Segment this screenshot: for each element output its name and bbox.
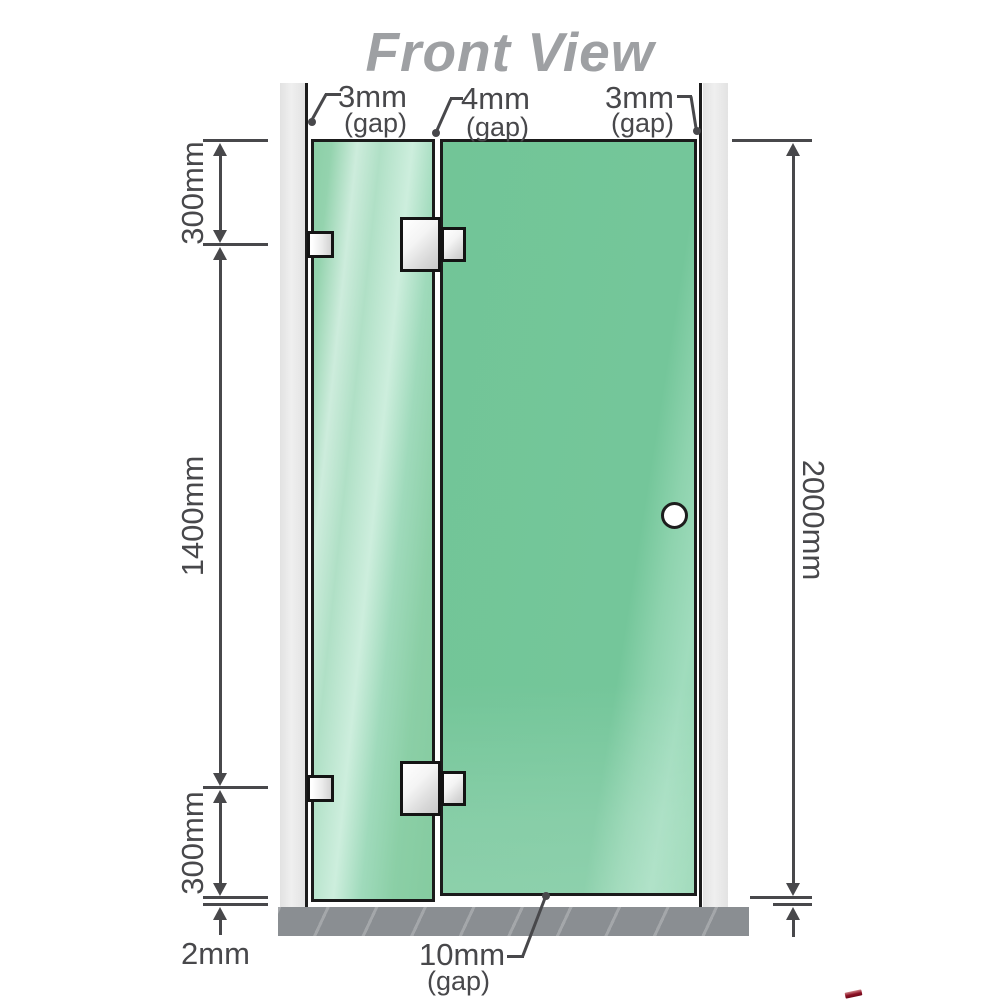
arrow-down-icon [213, 230, 227, 243]
leader-line [507, 955, 524, 958]
arrow-down-icon [213, 773, 227, 786]
arrow-up-icon [213, 247, 227, 260]
hinge-plate-icon [400, 217, 441, 272]
hinge-plate-icon [441, 227, 466, 262]
arrow-up-icon [213, 790, 227, 803]
leader-dot [693, 127, 701, 135]
wall-bracket-bottom [307, 775, 334, 802]
dimension-line [219, 258, 222, 776]
extension-tick [203, 786, 268, 789]
gap-note-label: (gap) [344, 108, 407, 139]
arrow-down-icon [213, 883, 227, 896]
dimension-line [792, 918, 795, 937]
right-wall-channel [703, 83, 728, 907]
leader-line [310, 94, 328, 123]
arrow-up-icon [786, 143, 800, 156]
extension-tick [773, 903, 812, 906]
dimension-line [219, 801, 222, 885]
extension-tick [203, 903, 268, 906]
gap-note-label: (gap) [611, 108, 674, 139]
hinge-plate-icon [441, 771, 466, 806]
dim-label-bottom-300mm: 300mm [175, 791, 211, 894]
extension-tick [732, 139, 812, 142]
hinge-plate-icon [400, 761, 441, 816]
dimension-line [219, 918, 222, 935]
gap-note-label: (gap) [466, 112, 529, 143]
dim-label-floor-gap-2mm: 2mm [181, 936, 250, 972]
arrow-up-icon [786, 907, 800, 920]
gap-note-label: (gap) [427, 966, 490, 997]
arrow-up-icon [213, 907, 227, 920]
arrow-down-icon [786, 883, 800, 896]
dim-label-top-300mm: 300mm [175, 141, 211, 244]
leader-line [435, 98, 453, 133]
dim-label-middle-1400mm: 1400mm [175, 456, 211, 577]
door-handle-knob-icon [661, 502, 688, 529]
extension-tick [203, 139, 268, 142]
floor-base [278, 907, 749, 936]
right-wall-edge-line [699, 83, 702, 907]
dimension-line [219, 154, 222, 232]
extension-tick [203, 896, 268, 899]
logo-fragment [845, 989, 863, 998]
left-wall-channel [280, 83, 305, 907]
diagram-title: Front View [10, 20, 1000, 84]
leader-line [690, 96, 698, 130]
wall-bracket-top [307, 231, 334, 258]
dim-label-total-2000mm: 2000mm [795, 460, 831, 581]
front-view-diagram: Front View 300mm 1400mm [0, 0, 1000, 1000]
extension-tick [203, 243, 268, 246]
arrow-up-icon [213, 143, 227, 156]
door-panel-glass [440, 139, 697, 896]
extension-tick [750, 896, 812, 899]
